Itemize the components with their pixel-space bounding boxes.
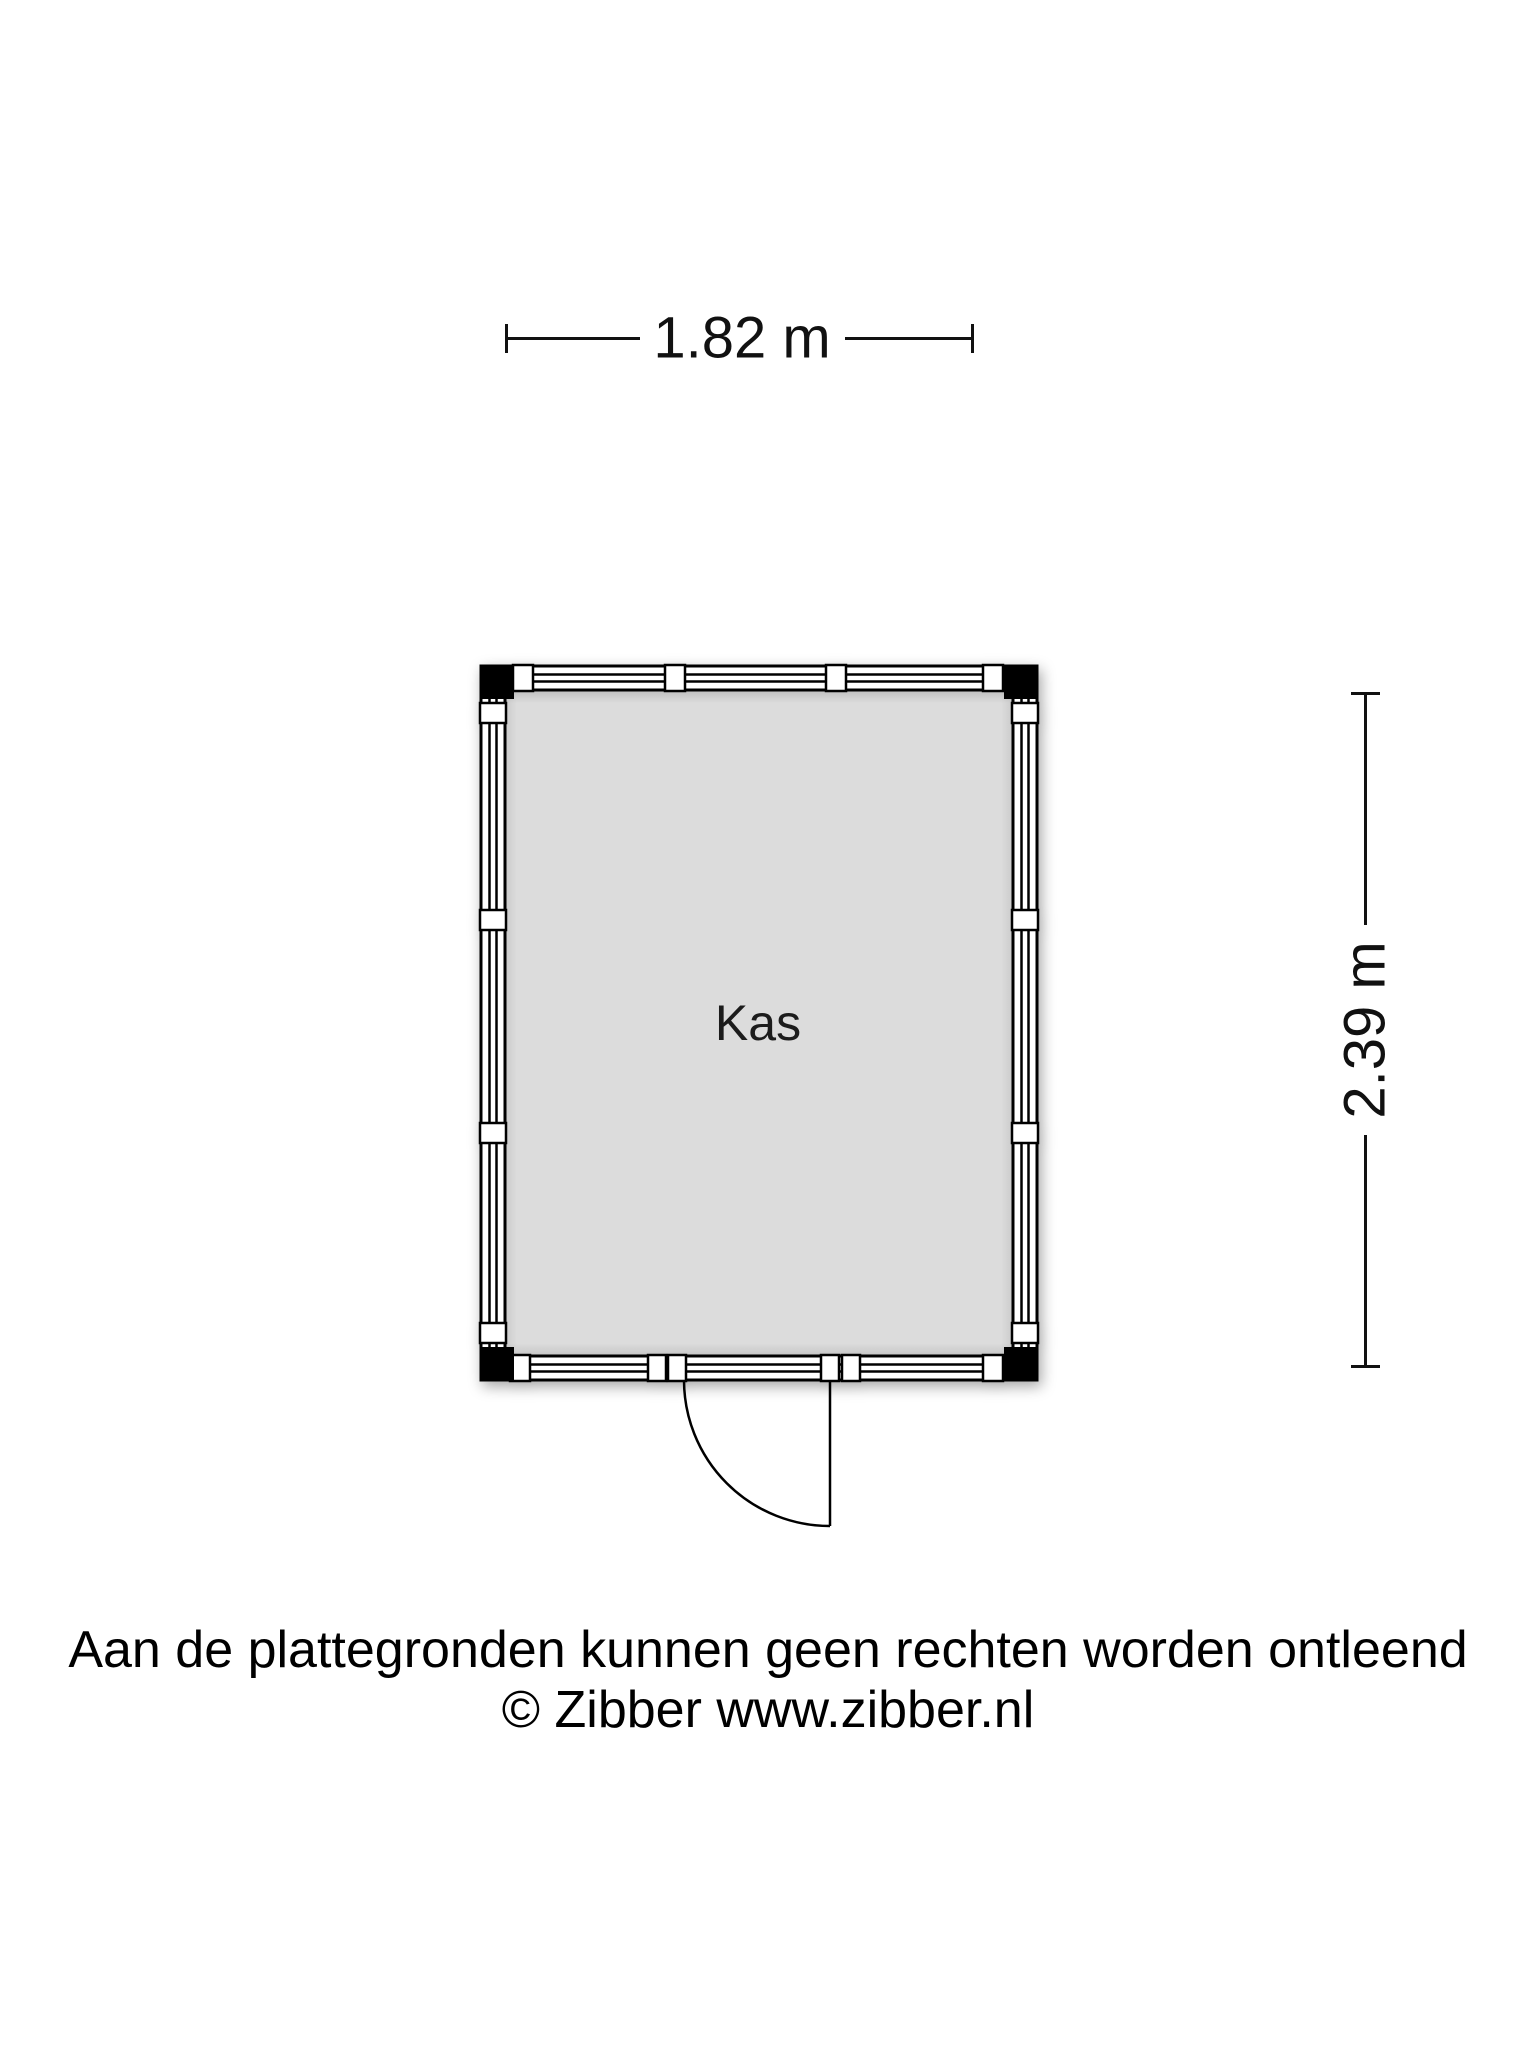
floorplan-page: 1.82 m 2.39 m xyxy=(0,0,1536,2048)
wall-mullion xyxy=(1012,910,1038,930)
room-label: Kas xyxy=(715,995,801,1051)
footer: Aan de plattegronden kunnen geen rechten… xyxy=(0,1620,1536,1740)
corner-post-top-right xyxy=(1004,666,1037,699)
wall-mullion xyxy=(480,703,506,723)
corner-post-top-left xyxy=(481,666,514,699)
height-dimension-label: 2.39 m xyxy=(1333,941,1398,1118)
room-inner-shadow-bottom xyxy=(505,1343,1013,1356)
wall-mullion xyxy=(480,910,506,930)
wall-mullion xyxy=(1012,1323,1038,1343)
glass-wall-bottom xyxy=(481,1356,1037,1380)
wall-mullion xyxy=(665,665,685,691)
door-jamb-mullion xyxy=(648,1355,666,1381)
copyright-text: © Zibber www.zibber.nl xyxy=(0,1680,1536,1740)
disclaimer-text: Aan de plattegronden kunnen geen rechten… xyxy=(0,1620,1536,1680)
wall-mullion xyxy=(983,1355,1003,1381)
glass-wall-top xyxy=(481,666,1037,690)
room-inner-shadow-top xyxy=(505,690,1013,703)
wall-mullion xyxy=(826,665,846,691)
corner-post-bottom-right xyxy=(1004,1347,1037,1380)
corner-post-bottom-left xyxy=(481,1347,514,1380)
wall-mullion xyxy=(480,1123,506,1143)
door-jamb-mullion xyxy=(668,1355,686,1381)
floorplan-drawing: 1.82 m 2.39 m xyxy=(0,0,1536,2048)
room-inner-shadow-right xyxy=(1001,690,1013,1356)
door-jamb-mullion xyxy=(821,1355,839,1381)
wall-mullion xyxy=(983,665,1003,691)
glass-wall-right xyxy=(1013,666,1037,1380)
glass-wall-left xyxy=(481,666,505,1380)
room-inner-shadow-left xyxy=(505,690,517,1356)
wall-mullion xyxy=(480,1323,506,1343)
wall-mullion xyxy=(1012,703,1038,723)
door-swing-arc xyxy=(684,1380,830,1526)
width-dimension-label: 1.82 m xyxy=(653,306,830,371)
wall-mullion xyxy=(513,665,533,691)
door-jamb-mullion xyxy=(842,1355,860,1381)
wall-mullion xyxy=(1012,1123,1038,1143)
door xyxy=(684,1380,830,1526)
